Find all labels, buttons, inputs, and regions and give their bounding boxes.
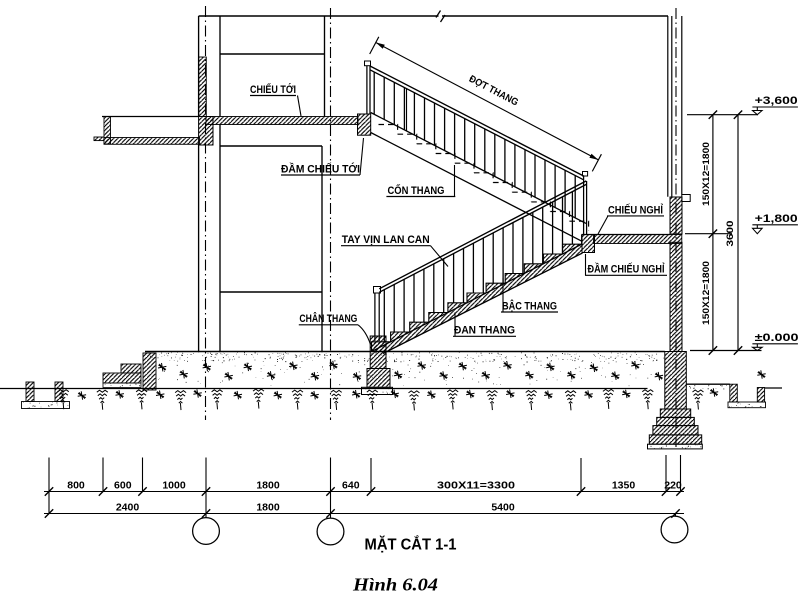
svg-text:640: 640 — [342, 479, 360, 491]
svg-text:ĐẦM CHIẾU NGHỈ: ĐẦM CHIẾU NGHỈ — [588, 263, 665, 276]
svg-text:Hình 6.04: Hình 6.04 — [352, 575, 438, 595]
svg-text:ĐAN THANG: ĐAN THANG — [454, 325, 515, 337]
svg-text:CHÂN THANG: CHÂN THANG — [299, 312, 357, 325]
svg-text:TAY VỊN LAN CAN: TAY VỊN LAN CAN — [342, 234, 430, 246]
svg-text:+1,800: +1,800 — [755, 213, 798, 225]
svg-text:3600: 3600 — [725, 221, 736, 247]
svg-text:600: 600 — [114, 479, 132, 491]
svg-text:CỐN THANG: CỐN THANG — [388, 183, 445, 197]
svg-text:150X12=1800: 150X12=1800 — [701, 261, 711, 325]
svg-text:BẬC THANG: BẬC THANG — [502, 299, 557, 312]
svg-text:150X12=1800: 150X12=1800 — [701, 142, 711, 206]
svg-text:220: 220 — [664, 479, 682, 491]
svg-text:MẶT CẮT 1-1: MẶT CẮT 1-1 — [365, 535, 457, 554]
svg-text:2400: 2400 — [116, 501, 140, 513]
svg-text:+3,600: +3,600 — [755, 95, 798, 107]
svg-text:ĐẦM CHIẾU TỚI: ĐẦM CHIẾU TỚI — [281, 162, 360, 175]
svg-text:1800: 1800 — [256, 501, 280, 513]
svg-text:CHIẾU NGHỈ: CHIẾU NGHỈ — [608, 203, 663, 216]
svg-text:800: 800 — [67, 479, 85, 491]
svg-text:300X11=3300: 300X11=3300 — [437, 479, 515, 491]
svg-text:1350: 1350 — [612, 479, 636, 491]
svg-text:5400: 5400 — [491, 501, 515, 513]
svg-text:1000: 1000 — [162, 479, 186, 491]
svg-text:1800: 1800 — [256, 479, 280, 491]
svg-text:±0.000: ±0.000 — [755, 332, 799, 344]
svg-text:ĐỢT THANG: ĐỢT THANG — [467, 74, 520, 109]
svg-text:CHIẾU TỚI: CHIẾU TỚI — [250, 83, 296, 96]
